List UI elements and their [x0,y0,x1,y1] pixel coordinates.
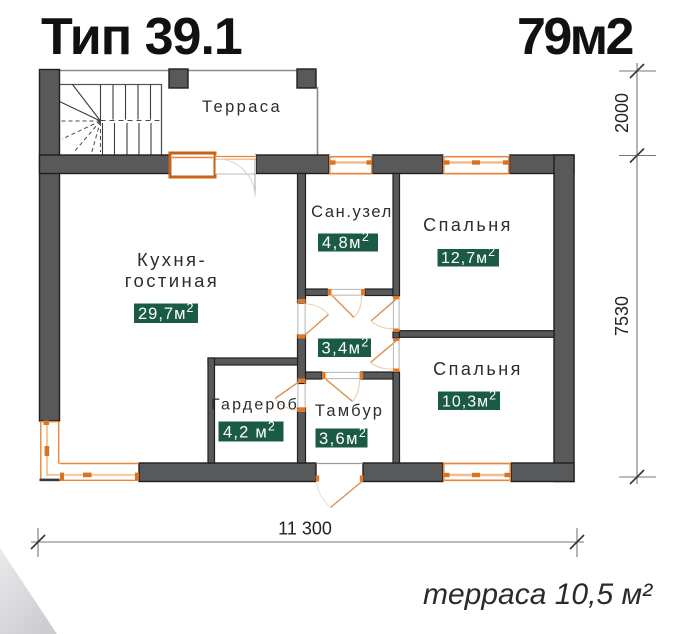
svg-text:Терраса: Терраса [202,98,282,116]
svg-text:2000: 2000 [612,93,632,133]
svg-text:гостиная: гостиная [125,270,219,291]
svg-text:11 300: 11 300 [278,519,332,539]
svg-text:29,7м2: 29,7м2 [138,301,194,323]
svg-text:терраса 10,5 м²: терраса 10,5 м² [423,578,653,611]
svg-text:Кухня-: Кухня- [137,249,207,270]
svg-text:Спальня: Спальня [423,215,513,235]
svg-text:Гардероб: Гардероб [211,397,299,414]
svg-text:Тамбур: Тамбур [315,402,384,420]
svg-text:Сан.узел: Сан.узел [311,203,393,221]
svg-text:Тип 39.1: Тип 39.1 [41,8,242,66]
svg-text:Спальня: Спальня [433,359,523,379]
svg-text:79м2: 79м2 [517,8,633,66]
svg-text:7530: 7530 [612,296,632,336]
